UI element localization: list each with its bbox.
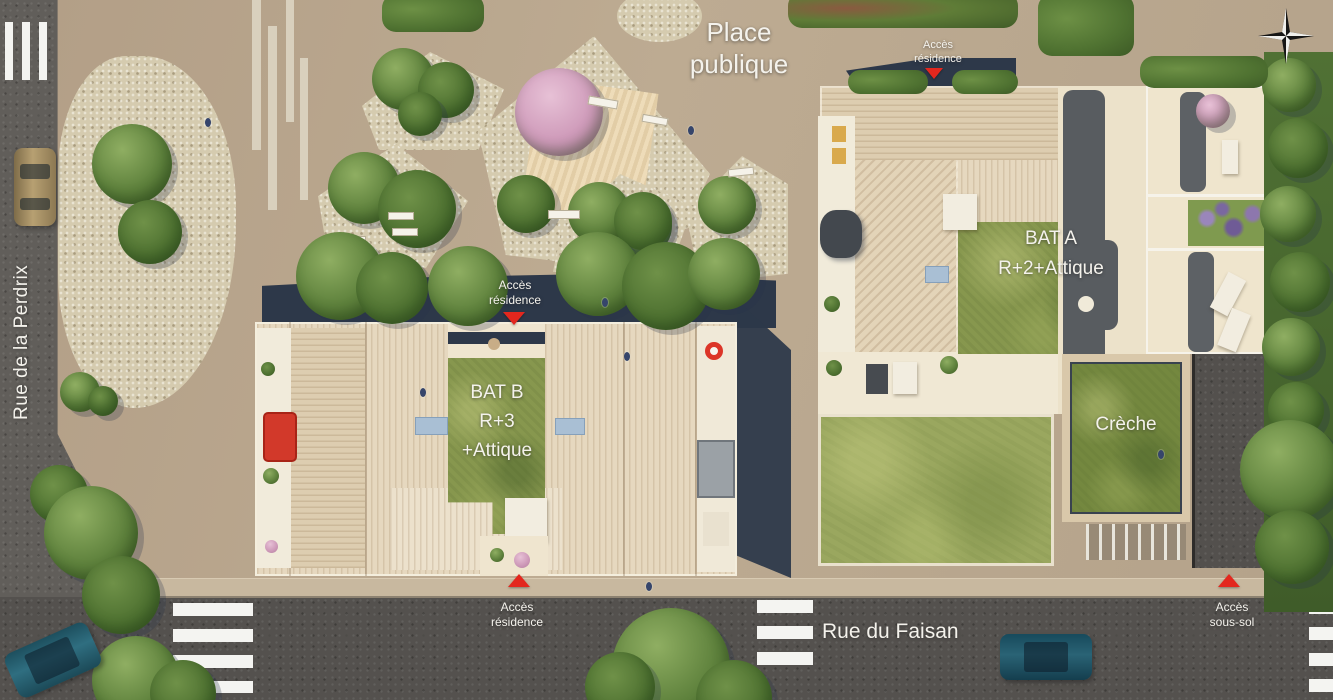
terrace-table (703, 512, 729, 546)
terrace-sofa (866, 364, 888, 394)
roof-terrace (480, 536, 548, 576)
pedestrian (205, 118, 211, 127)
tree (398, 92, 442, 136)
access-label-sous-sol: Accès sous-sol (1182, 600, 1282, 630)
building-shadow (737, 300, 791, 578)
hedge (1038, 0, 1134, 56)
entrance-arrow-icon (508, 574, 530, 587)
building-name: BAT A (958, 224, 1144, 254)
bench (548, 210, 580, 219)
site-plan: Place publique Rue de la Perdrix Rue du … (0, 0, 1333, 700)
skylight (415, 417, 448, 435)
car (14, 148, 56, 226)
tree (118, 200, 182, 264)
building-floors: +Attique (448, 436, 546, 465)
building-creche (1062, 354, 1190, 522)
roof-terrace (448, 324, 545, 358)
hedge (382, 0, 484, 32)
pergola (697, 440, 735, 498)
pedestrian (1158, 450, 1164, 459)
bench (388, 212, 414, 220)
pedestrian (602, 298, 608, 307)
access-label-residence-bat-b-north: Accès résidence (455, 278, 575, 308)
car (1000, 634, 1092, 680)
building-label-creche: Crèche (1068, 414, 1184, 436)
shrub (261, 362, 275, 376)
shrub (263, 468, 279, 484)
lavender-bed (1188, 200, 1264, 246)
crosswalk (1309, 601, 1333, 693)
plaza-label: Place publique (664, 16, 814, 80)
terrace-chair (832, 126, 846, 142)
shrub (490, 548, 504, 562)
pedestrian (420, 388, 426, 397)
building-name: BAT B (448, 378, 546, 407)
entrance-arrow-icon (925, 68, 943, 79)
tree (82, 556, 160, 634)
building-floors: R+2+Attique (958, 254, 1144, 284)
terrace-table (488, 338, 500, 350)
tree (92, 124, 172, 204)
tree (1262, 318, 1320, 376)
tree (1260, 186, 1316, 242)
bench (392, 228, 418, 236)
plaza-steps (268, 26, 277, 210)
terrace (818, 352, 1058, 414)
skylight (925, 266, 949, 283)
plaza-steps (300, 58, 308, 200)
hedge (1140, 56, 1268, 88)
street-label-faisan: Rue du Faisan (822, 620, 959, 644)
red-round-table (705, 342, 723, 360)
shrub (265, 540, 278, 553)
plaza-steps (252, 0, 261, 150)
garden-path (1188, 252, 1214, 352)
flowering-tree (1196, 94, 1230, 128)
tree (1270, 252, 1330, 312)
entrance-arrow-icon (1218, 574, 1240, 587)
entrance-arrow-icon (503, 312, 525, 325)
tree (1262, 58, 1316, 112)
building-label-bat-a: BAT A R+2+Attique (958, 224, 1144, 284)
building-label-bat-b: BAT B R+3 +Attique (448, 378, 546, 465)
tree (356, 252, 428, 324)
tree (88, 386, 118, 416)
access-label-residence-bat-b-south: Accès résidence (462, 600, 572, 630)
parasol (820, 210, 862, 258)
tree (1268, 118, 1328, 178)
shrub (824, 296, 840, 312)
crosswalk (757, 600, 813, 678)
hedge (848, 70, 928, 94)
sun-lounger (1217, 308, 1251, 353)
hedge (952, 70, 1018, 94)
terrace-chair (832, 148, 846, 164)
access-label-residence-bat-a: Accès résidence (896, 38, 980, 66)
tree (1240, 420, 1333, 520)
skylight (555, 418, 585, 435)
roof-section (289, 328, 365, 568)
pedestrian (624, 352, 630, 361)
shrub (826, 360, 842, 376)
tree (688, 238, 760, 310)
plaza-steps (286, 0, 294, 122)
garden-divider (1148, 194, 1264, 197)
terrace (697, 326, 735, 572)
terrace-table (1222, 140, 1238, 174)
shrub (940, 356, 958, 374)
building-floors: R+3 (448, 407, 546, 436)
terrace-table (893, 362, 917, 394)
pedestrian (688, 126, 694, 135)
hedge (788, 0, 1018, 28)
sidewalk (150, 578, 1333, 598)
pedestrian (646, 582, 652, 591)
compass-icon (1256, 6, 1316, 66)
bike-rack (1086, 524, 1186, 560)
red-parasol (263, 412, 297, 462)
green-roof-creche (1070, 362, 1182, 514)
terrace-table (1078, 296, 1094, 312)
roof-ridge (365, 322, 367, 576)
flowering-tree (515, 68, 603, 156)
tree (698, 176, 756, 234)
street-label-perdrix: Rue de la Perdrix (0, 235, 44, 450)
tree (1255, 510, 1329, 584)
lawn (818, 414, 1054, 566)
crosswalk (5, 22, 47, 80)
private-gardens (1146, 86, 1266, 354)
shrub (514, 552, 530, 568)
tree (378, 170, 456, 248)
sun-lounger (1210, 272, 1246, 317)
building-bat-a-roof-north (820, 86, 1060, 162)
garden-divider (1148, 248, 1264, 251)
tree (497, 175, 555, 233)
